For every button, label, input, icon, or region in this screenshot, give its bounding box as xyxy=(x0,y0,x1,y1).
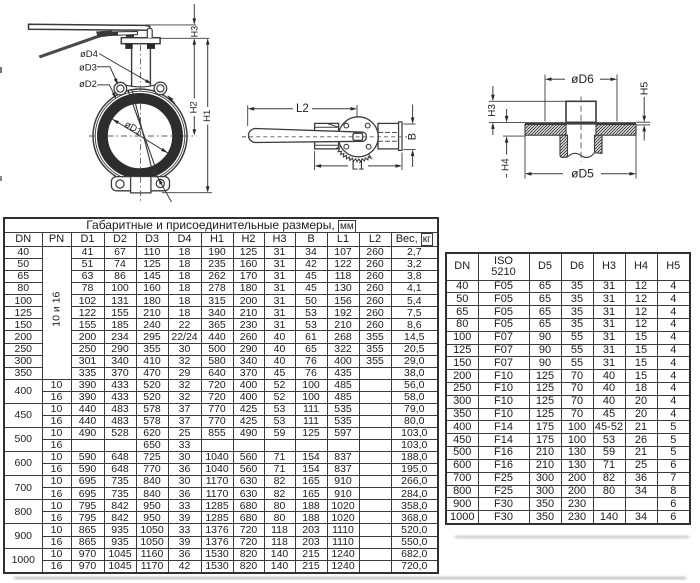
svg-text:L2: L2 xyxy=(296,103,309,115)
svg-text:B: B xyxy=(407,133,419,140)
svg-text:L1: L1 xyxy=(352,161,365,173)
svg-text:H4: H4 xyxy=(501,158,512,171)
svg-text:øD3: øD3 xyxy=(79,63,97,74)
svg-text:øD6: øD6 xyxy=(571,72,594,86)
svg-text:H5: H5 xyxy=(639,82,651,96)
svg-text:H3: H3 xyxy=(189,26,199,38)
svg-text:H3: H3 xyxy=(487,104,498,117)
svg-text:øD5: øD5 xyxy=(571,167,594,181)
svg-text:H2: H2 xyxy=(189,101,200,113)
svg-text:H1: H1 xyxy=(202,110,213,122)
svg-text:øD2: øD2 xyxy=(79,79,97,90)
svg-text:øD4: øD4 xyxy=(80,49,98,60)
